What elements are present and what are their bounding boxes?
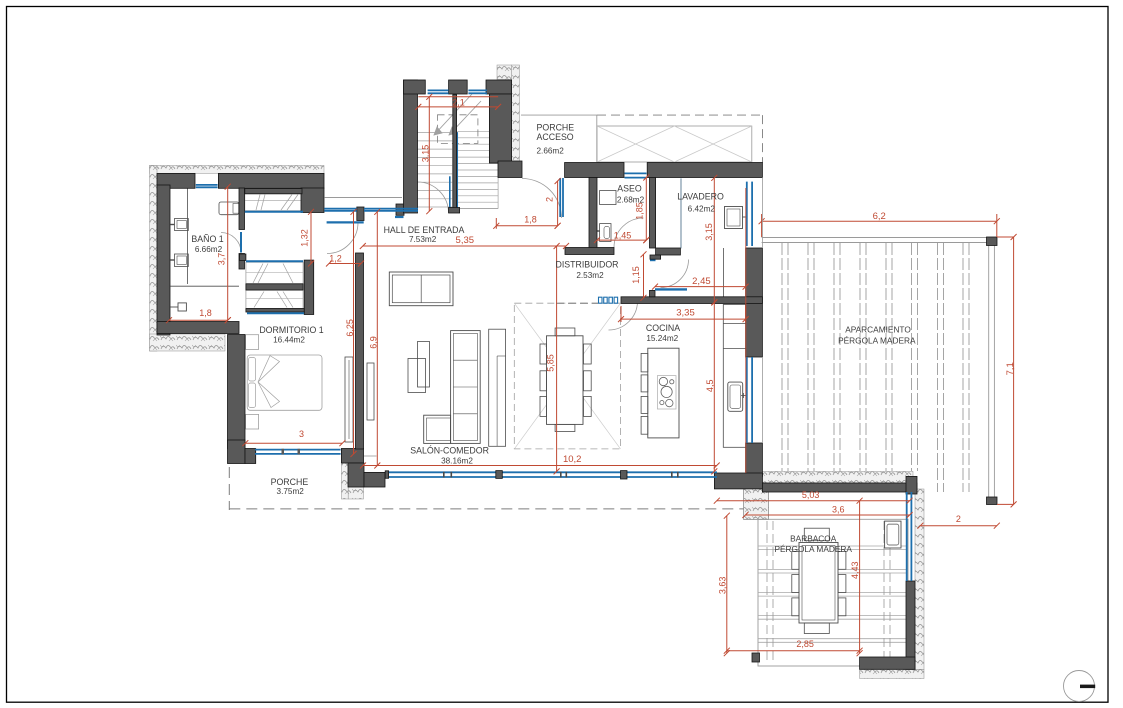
- svg-text:HALL DE ENTRADA: HALL DE ENTRADA: [384, 225, 465, 235]
- svg-text:1,45: 1,45: [614, 230, 632, 240]
- svg-text:DORMITORIO 1: DORMITORIO 1: [259, 325, 323, 335]
- svg-text:PORCHE: PORCHE: [537, 123, 575, 133]
- svg-text:3,35: 3,35: [676, 308, 695, 319]
- svg-text:38.16m2: 38.16m2: [441, 456, 473, 465]
- svg-text:3,63: 3,63: [718, 577, 728, 595]
- svg-text:PÉRGOLA MADERA: PÉRGOLA MADERA: [838, 335, 916, 345]
- svg-text:7.53m2: 7.53m2: [409, 235, 437, 244]
- svg-text:3,6: 3,6: [832, 505, 845, 515]
- svg-text:1,8: 1,8: [524, 214, 537, 224]
- svg-text:2: 2: [956, 514, 961, 524]
- svg-text:1,32: 1,32: [300, 229, 310, 247]
- svg-text:2: 2: [545, 197, 555, 202]
- svg-text:6.42m2: 6.42m2: [688, 205, 716, 214]
- svg-text:PÉRGOLA MADERA: PÉRGOLA MADERA: [774, 544, 852, 554]
- svg-text:6,2: 6,2: [873, 211, 886, 222]
- svg-text:3.75m2: 3.75m2: [277, 487, 305, 496]
- svg-text:BAÑO 1: BAÑO 1: [191, 234, 223, 244]
- svg-text:10,2: 10,2: [563, 454, 582, 465]
- svg-text:1,85: 1,85: [634, 202, 644, 220]
- svg-text:1,8: 1,8: [199, 308, 212, 318]
- svg-text:6,25: 6,25: [345, 319, 355, 337]
- svg-text:4,43: 4,43: [850, 561, 860, 579]
- svg-text:5,85: 5,85: [546, 354, 556, 372]
- svg-text:SALÓN-COMEDOR: SALÓN-COMEDOR: [410, 446, 489, 456]
- svg-text:1,15: 1,15: [631, 266, 641, 284]
- svg-text:ACCESO: ACCESO: [537, 132, 574, 142]
- svg-text:BARBACOA: BARBACOA: [790, 534, 837, 544]
- svg-text:1,2: 1,2: [329, 254, 342, 264]
- svg-text:LAVADERO: LAVADERO: [677, 192, 724, 202]
- svg-text:3: 3: [299, 429, 304, 439]
- svg-text:COCINA: COCINA: [646, 323, 680, 333]
- svg-text:3,15: 3,15: [704, 223, 714, 241]
- svg-text:2,45: 2,45: [692, 276, 711, 287]
- svg-text:DISTRIBUIDOR: DISTRIBUIDOR: [555, 260, 618, 270]
- svg-text:2.66m2: 2.66m2: [537, 147, 565, 156]
- svg-text:4,5: 4,5: [705, 380, 715, 393]
- svg-text:6,9: 6,9: [369, 336, 379, 349]
- svg-text:16.44m2: 16.44m2: [273, 336, 305, 345]
- svg-text:2,1: 2,1: [452, 97, 465, 107]
- svg-text:7,1: 7,1: [1005, 362, 1016, 375]
- svg-text:ASEO: ASEO: [617, 184, 642, 194]
- svg-text:5,35: 5,35: [456, 235, 475, 246]
- svg-text:6.66m2: 6.66m2: [195, 245, 223, 254]
- svg-text:2,85: 2,85: [796, 639, 814, 649]
- svg-text:3,15: 3,15: [420, 145, 430, 163]
- svg-text:2.53m2: 2.53m2: [576, 271, 604, 280]
- svg-text:PORCHE: PORCHE: [271, 477, 309, 487]
- svg-text:5,03: 5,03: [802, 490, 820, 500]
- svg-text:3,7: 3,7: [217, 253, 227, 266]
- svg-text:15.24m2: 15.24m2: [646, 334, 678, 343]
- svg-text:2.68m2: 2.68m2: [617, 196, 645, 205]
- svg-text:APARCAMIENTO: APARCAMIENTO: [845, 325, 911, 335]
